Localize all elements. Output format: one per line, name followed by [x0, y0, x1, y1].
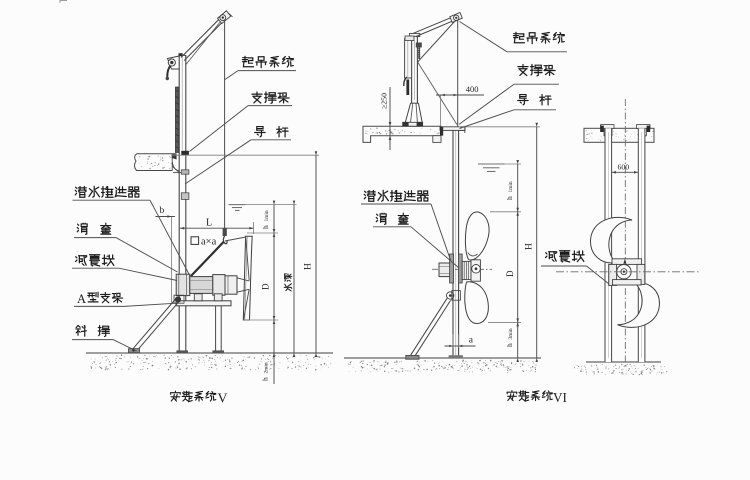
svg-text:1min: 1min: [264, 210, 270, 221]
svg-text:b: b: [160, 206, 165, 216]
svg-text:L: L: [206, 218, 212, 229]
svg-text:A: A: [77, 292, 86, 306]
svg-text:h: h: [261, 377, 270, 381]
svg-text:600: 600: [618, 163, 630, 172]
svg-text:a×a: a×a: [201, 237, 217, 248]
svg-text:D: D: [261, 283, 271, 290]
svg-text:h: h: [505, 196, 514, 200]
svg-text:≥250: ≥250: [380, 93, 389, 109]
svg-text:H: H: [304, 263, 314, 270]
svg-text:D: D: [505, 270, 515, 277]
svg-text:h: h: [505, 343, 514, 347]
svg-text:400: 400: [466, 84, 479, 94]
svg-text:3min: 3min: [508, 328, 514, 339]
svg-text:2min: 2min: [264, 362, 270, 373]
svg-text:VI: VI: [553, 390, 567, 405]
svg-text:h: h: [261, 225, 270, 229]
svg-text:H: H: [525, 243, 535, 250]
svg-text:1min: 1min: [508, 181, 514, 192]
svg-text:V: V: [218, 391, 228, 406]
